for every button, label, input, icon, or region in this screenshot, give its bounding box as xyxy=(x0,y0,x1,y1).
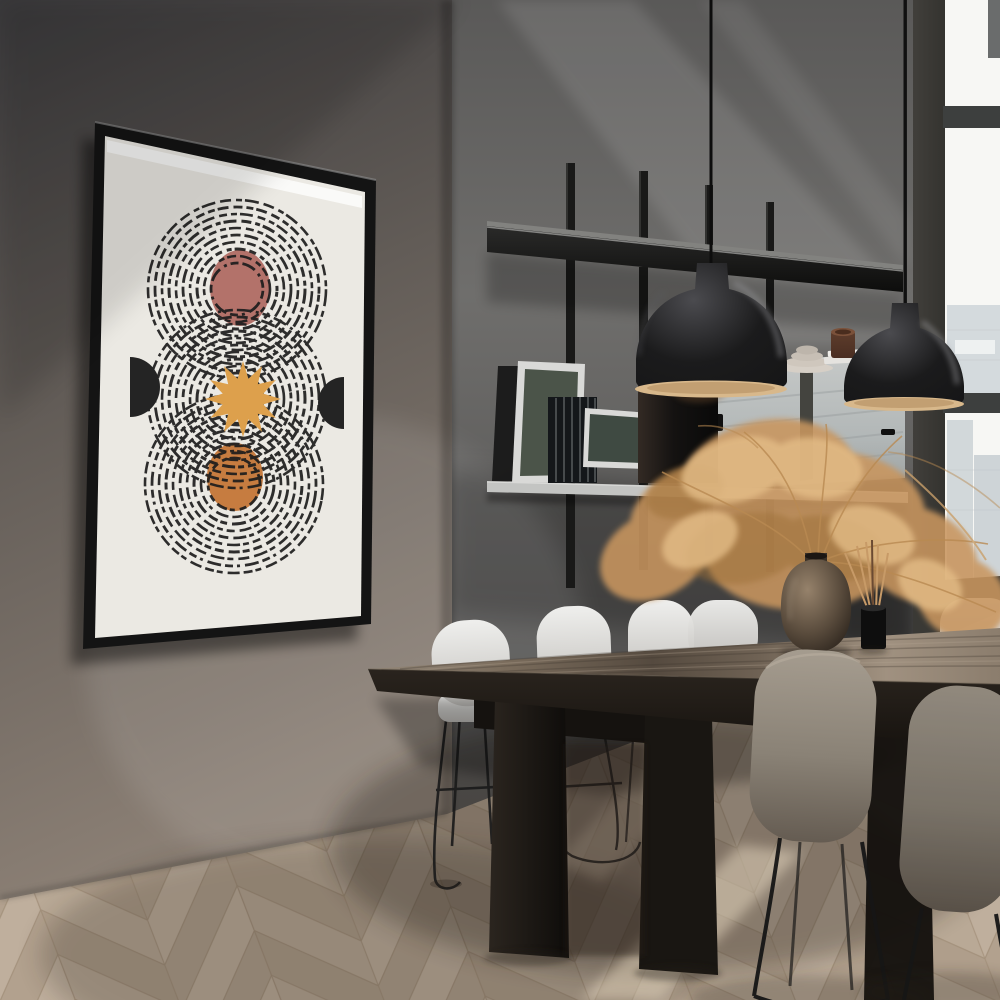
brown-canister xyxy=(831,328,855,358)
chair-shell-shade xyxy=(896,682,1000,915)
vase-opening xyxy=(805,553,827,560)
lamp-rim-inner xyxy=(647,382,775,394)
diffuser-bottle xyxy=(861,607,886,649)
lamp-cord xyxy=(710,0,713,268)
scene-canvas xyxy=(0,0,1000,1000)
window-corner-frame xyxy=(988,0,1000,58)
chair-shell xyxy=(747,647,879,845)
art-rose-oval xyxy=(210,250,270,326)
lamp-cord-2 xyxy=(904,0,907,306)
diffuser-reed-dark xyxy=(872,540,873,612)
interior-photo xyxy=(0,0,1000,1000)
window-mullion-top xyxy=(943,106,1000,128)
diffuser-shadow xyxy=(858,648,888,655)
chair-contact-shadow xyxy=(430,880,462,889)
table-leg-left xyxy=(474,690,722,981)
lamp-rim-2-inner xyxy=(854,398,954,408)
diffuser-top xyxy=(861,605,885,611)
door-handle-right xyxy=(881,429,895,435)
